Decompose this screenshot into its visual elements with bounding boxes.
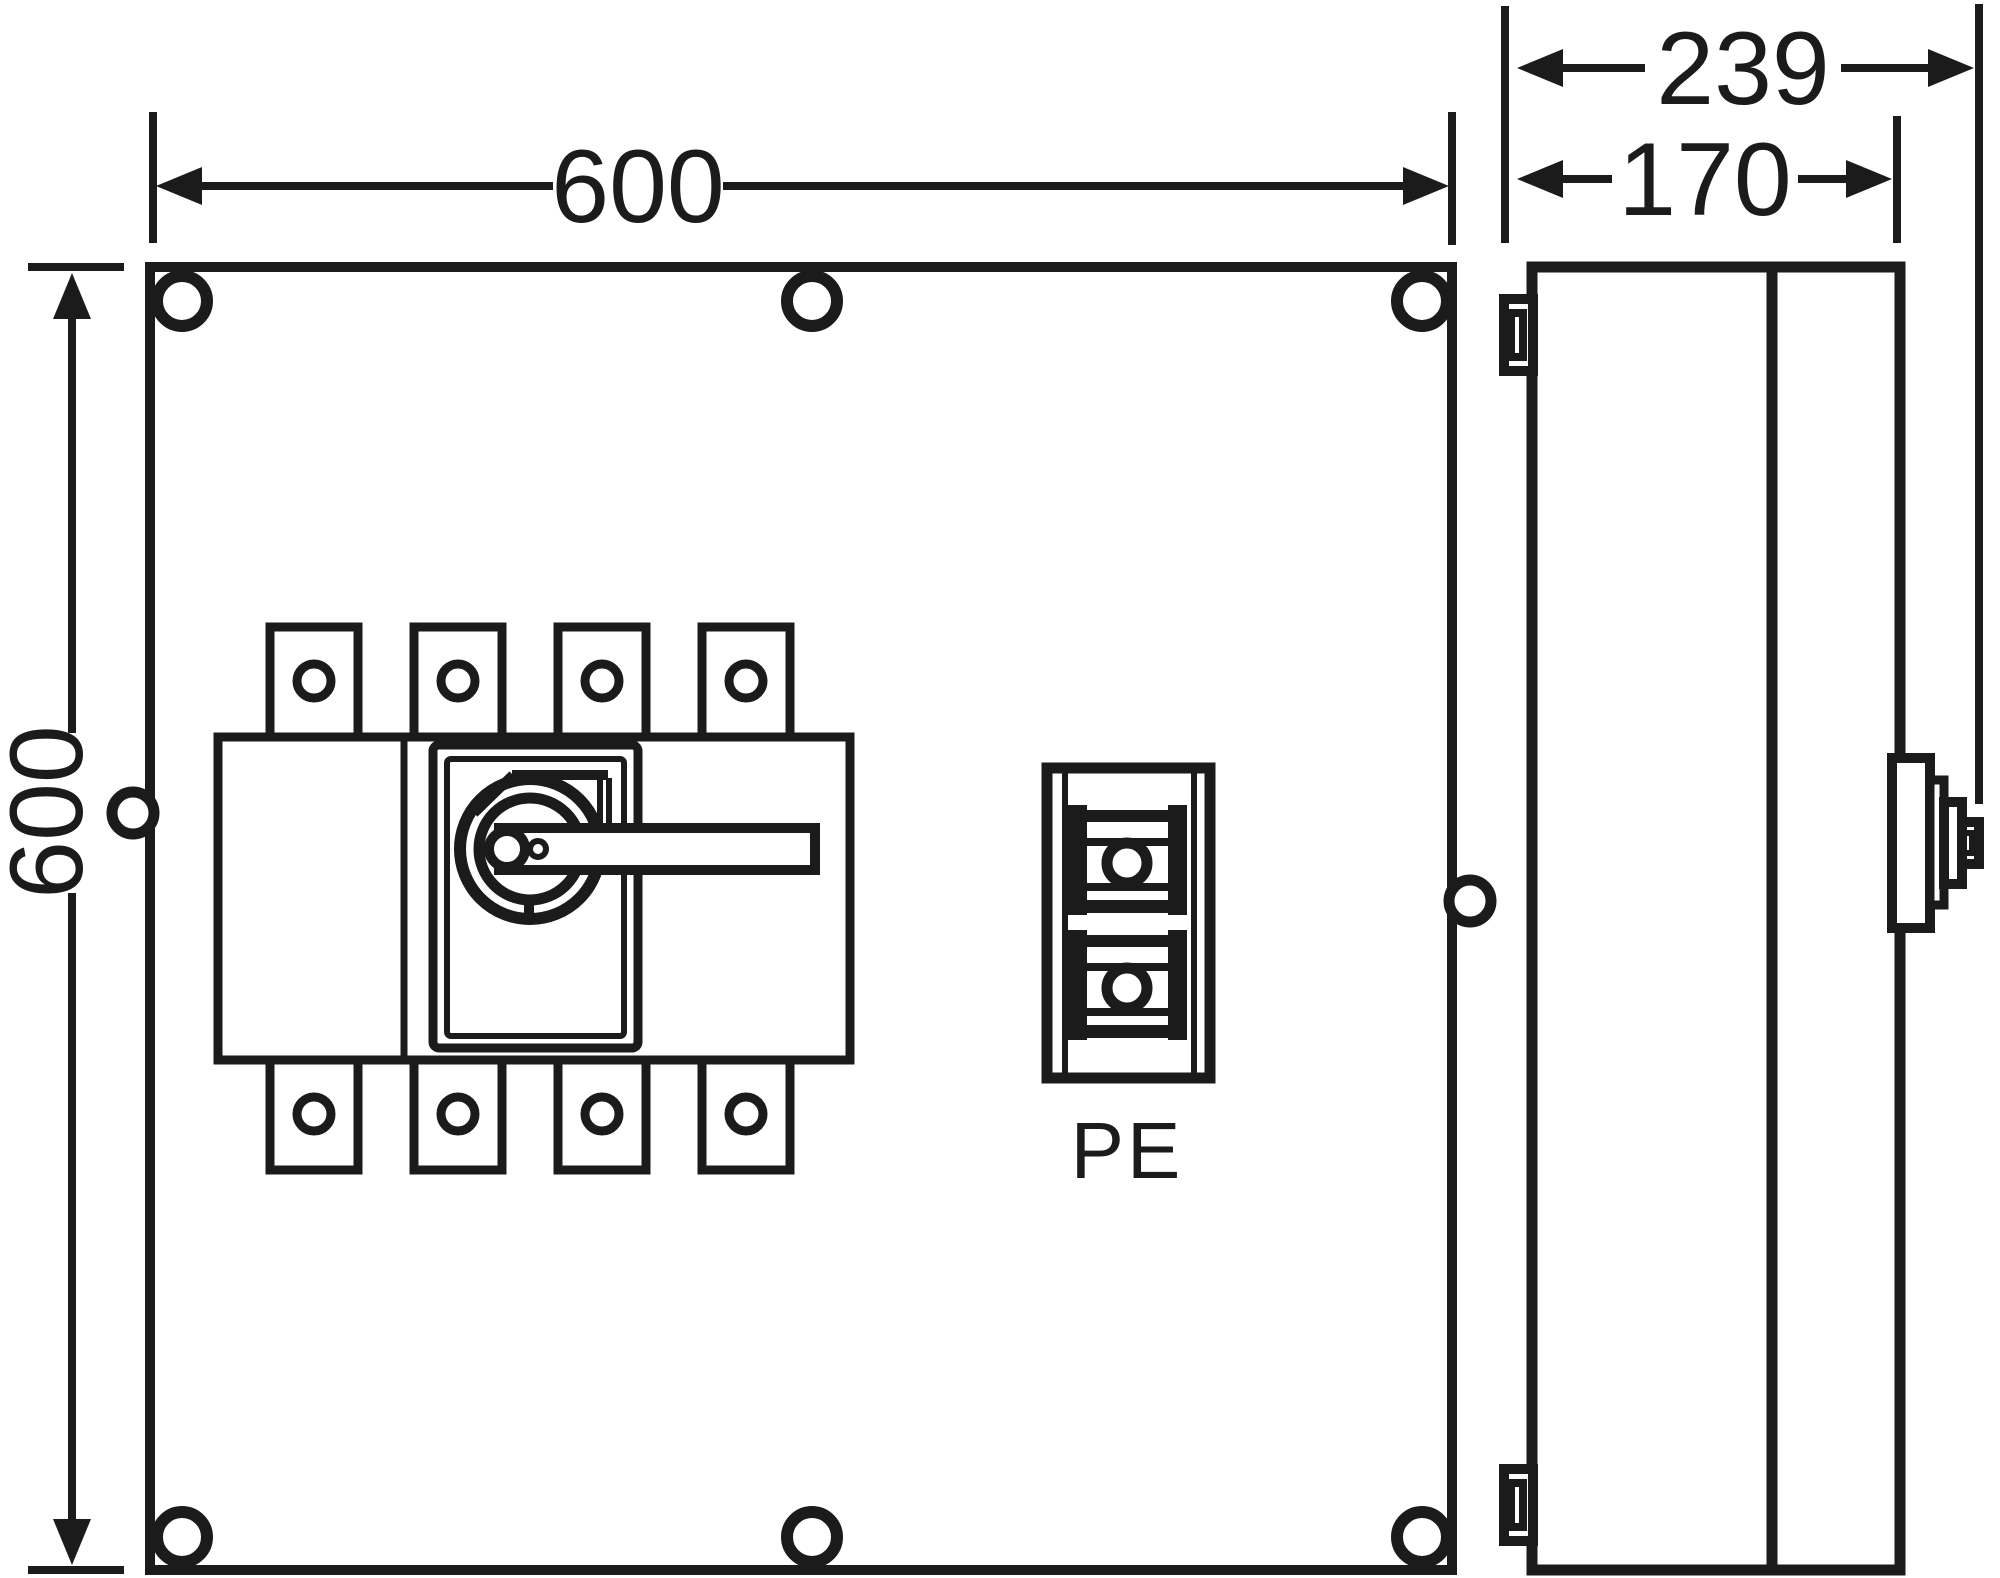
- front-view: PE: [112, 267, 1491, 1570]
- clip-nub-slot: [1964, 833, 1972, 853]
- pe-terminal-block: PE: [1047, 768, 1210, 1195]
- pe-screw: [1107, 968, 1147, 1008]
- screw-top-middle: [787, 276, 837, 326]
- terminal-tab: [558, 1058, 646, 1170]
- switch-top-terminals: [270, 627, 790, 739]
- wall-mount-clip: [1892, 758, 1979, 928]
- arrowhead-up-icon: [53, 273, 91, 319]
- screw-top-left: [157, 276, 207, 326]
- pe-unit-bottom-bar: [1087, 900, 1168, 913]
- dimension-side-depth-body: 170: [1517, 116, 1897, 243]
- arrowhead-right-icon: [1928, 49, 1974, 87]
- pe-unit-side-plate: [1168, 930, 1187, 1040]
- dimension-value-front-width: 600: [551, 129, 725, 245]
- hinge-top: [1504, 299, 1533, 371]
- arrowhead-down-icon: [53, 1519, 91, 1565]
- arrowhead-left-icon: [156, 167, 202, 205]
- arrowhead-right-icon: [1846, 160, 1892, 198]
- terminal-tab: [702, 1058, 790, 1170]
- arrowhead-left-icon: [1517, 49, 1563, 87]
- terminal-tab: [414, 627, 502, 739]
- pe-unit-top-bar: [1087, 935, 1168, 947]
- dimension-value-side-depth-body: 170: [1618, 122, 1792, 238]
- enclosure-drawing-svg: PE 600: [0, 0, 2000, 1578]
- hinge-slot: [1511, 313, 1523, 357]
- dimension-value-side-depth-total: 239: [1656, 11, 1830, 127]
- screw-bottom-left: [157, 1512, 207, 1562]
- hinge-slot: [1511, 1483, 1523, 1527]
- screw-bottom-middle: [787, 1512, 837, 1562]
- pe-unit-bottom-bar: [1087, 1025, 1168, 1038]
- pe-screw: [1107, 843, 1147, 883]
- switch-bottom-terminals: [270, 1058, 790, 1170]
- side-view: [1504, 267, 1979, 1570]
- technical-drawing-canvas: PE 600: [0, 0, 2000, 1578]
- clip-plate: [1892, 758, 1930, 928]
- pe-unit-side-plate: [1168, 805, 1187, 915]
- screw-bottom-right: [1397, 1512, 1447, 1562]
- dimension-front-height: 600: [0, 267, 124, 1570]
- pe-label: PE: [1071, 1106, 1184, 1195]
- terminal-tab: [270, 627, 358, 739]
- arrowhead-right-icon: [1403, 167, 1449, 205]
- terminal-tab: [414, 1058, 502, 1170]
- hinge-bottom: [1504, 1469, 1533, 1541]
- dimension-value-front-height: 600: [0, 725, 105, 899]
- screw-mid-left: [112, 792, 154, 834]
- arrowhead-left-icon: [1517, 160, 1563, 198]
- screw-top-right: [1397, 276, 1447, 326]
- dimension-front-width: 600: [153, 112, 1452, 245]
- terminal-tab: [702, 627, 790, 739]
- terminal-tab: [558, 627, 646, 739]
- switch-disconnector: [218, 627, 850, 1170]
- terminal-tab: [270, 1058, 358, 1170]
- handle-hub-pin: [530, 841, 546, 857]
- pe-unit-side-plate: [1068, 805, 1087, 915]
- pe-unit-top-bar: [1087, 810, 1168, 822]
- pe-unit-side-plate: [1068, 930, 1087, 1040]
- screw-mid-right: [1449, 880, 1491, 922]
- side-enclosure-outline: [1532, 267, 1900, 1570]
- handle-hub: [489, 831, 525, 867]
